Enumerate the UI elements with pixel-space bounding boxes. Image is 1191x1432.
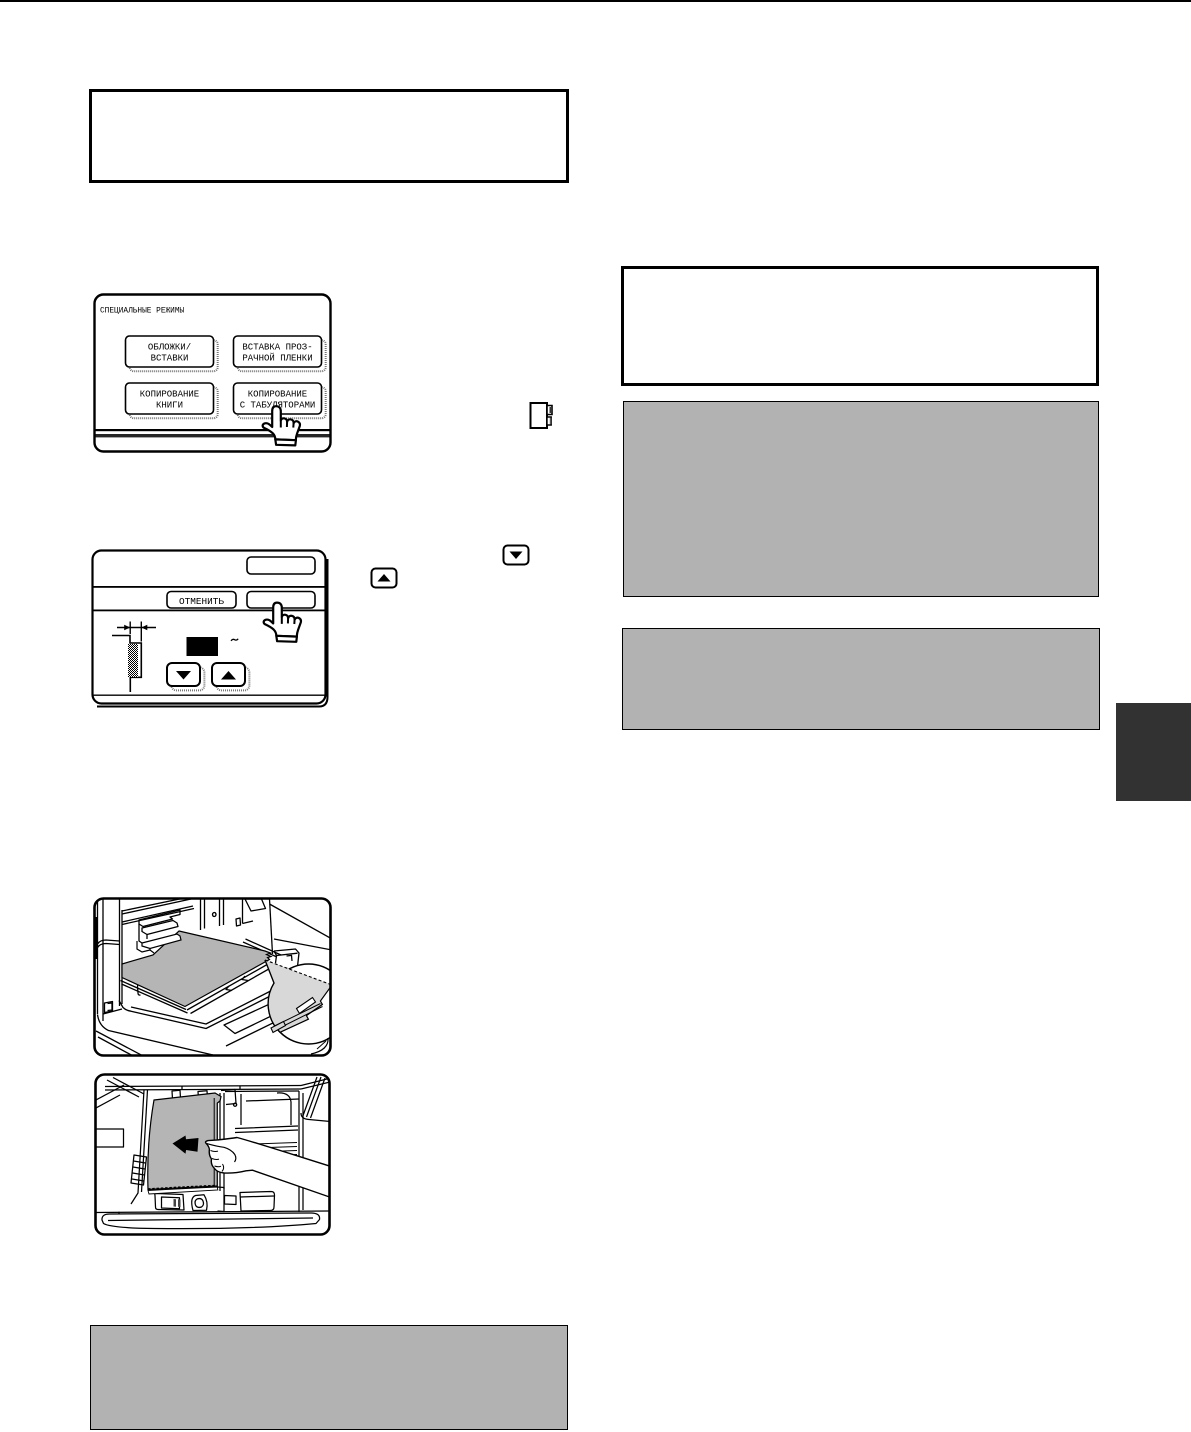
svg-text:СПЕЦИАЛЬНЫЕ РЕЖИМЫ: СПЕЦИАЛЬНЫЕ РЕЖИМЫ: [100, 308, 185, 316]
svg-text:КОПИРОВАНИЕ: КОПИРОВАНИЕ: [140, 390, 199, 400]
svg-text:РАЧНОЙ ПЛЕНКИ: РАЧНОЙ ПЛЕНКИ: [242, 353, 312, 364]
svg-text:ВСТАВКА ПРОЗ-: ВСТАВКА ПРОЗ-: [242, 343, 312, 353]
svg-text:ОБЛОЖКИ/: ОБЛОЖКИ/: [148, 343, 191, 353]
svg-text:КНИГИ: КНИГИ: [156, 401, 183, 411]
svg-text:ОТМЕНИТЬ: ОТМЕНИТЬ: [179, 596, 224, 607]
svg-text:ВСТАВКИ: ВСТАВКИ: [151, 354, 189, 364]
svg-text:КОПИРОВАНИЕ: КОПИРОВАНИЕ: [248, 390, 307, 400]
